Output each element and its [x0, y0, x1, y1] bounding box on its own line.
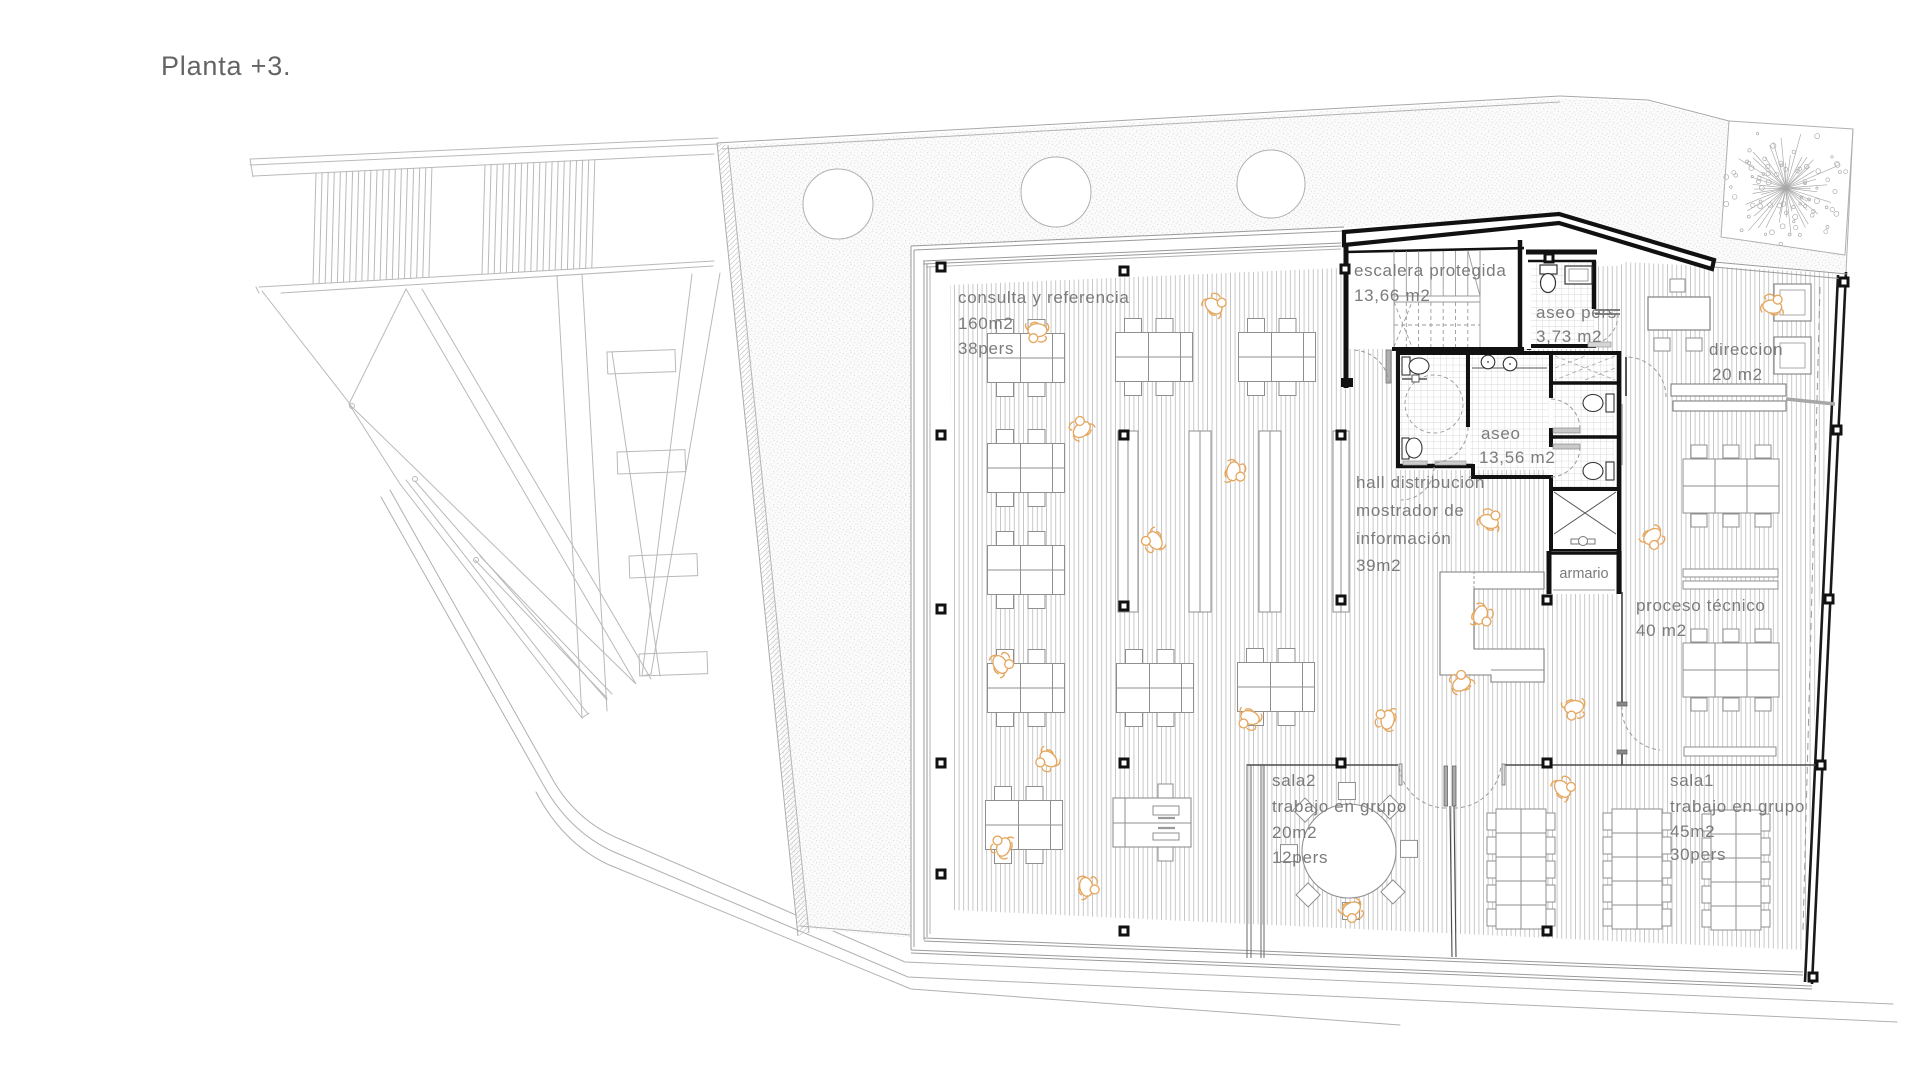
svg-text:40 m2: 40 m2 — [1636, 621, 1687, 640]
svg-text:trabajo en grupo: trabajo en grupo — [1670, 797, 1805, 816]
svg-text:mostrador de: mostrador de — [1356, 501, 1465, 520]
svg-text:160m2: 160m2 — [958, 314, 1013, 333]
svg-text:20m2: 20m2 — [1272, 823, 1317, 842]
svg-text:información: información — [1356, 529, 1452, 548]
svg-text:armario: armario — [1559, 566, 1608, 582]
svg-text:Planta +3.: Planta +3. — [161, 51, 291, 81]
svg-text:30pers: 30pers — [1670, 845, 1726, 864]
svg-text:consulta y referencia: consulta y referencia — [958, 288, 1130, 307]
svg-text:escalera protegida: escalera protegida — [1354, 261, 1506, 280]
svg-text:12pers: 12pers — [1272, 848, 1328, 867]
svg-text:aseo pers: aseo pers — [1536, 303, 1617, 322]
svg-text:sala2: sala2 — [1272, 771, 1316, 790]
svg-text:sala1: sala1 — [1670, 771, 1714, 790]
svg-text:direccion: direccion — [1709, 340, 1783, 359]
svg-text:39m2: 39m2 — [1356, 556, 1401, 575]
svg-text:proceso técnico: proceso técnico — [1636, 596, 1766, 615]
svg-text:13,56 m2: 13,56 m2 — [1479, 448, 1555, 467]
svg-text:20 m2: 20 m2 — [1712, 365, 1763, 384]
svg-text:13,66 m2: 13,66 m2 — [1354, 286, 1430, 305]
svg-text:trabajo en grupo: trabajo en grupo — [1272, 797, 1407, 816]
svg-text:3,73 m2: 3,73 m2 — [1536, 327, 1602, 346]
svg-text:aseo: aseo — [1481, 424, 1521, 443]
svg-text:38pers: 38pers — [958, 339, 1014, 358]
svg-text:hall distribución: hall distribución — [1356, 473, 1485, 492]
svg-text:45m2: 45m2 — [1670, 822, 1715, 841]
